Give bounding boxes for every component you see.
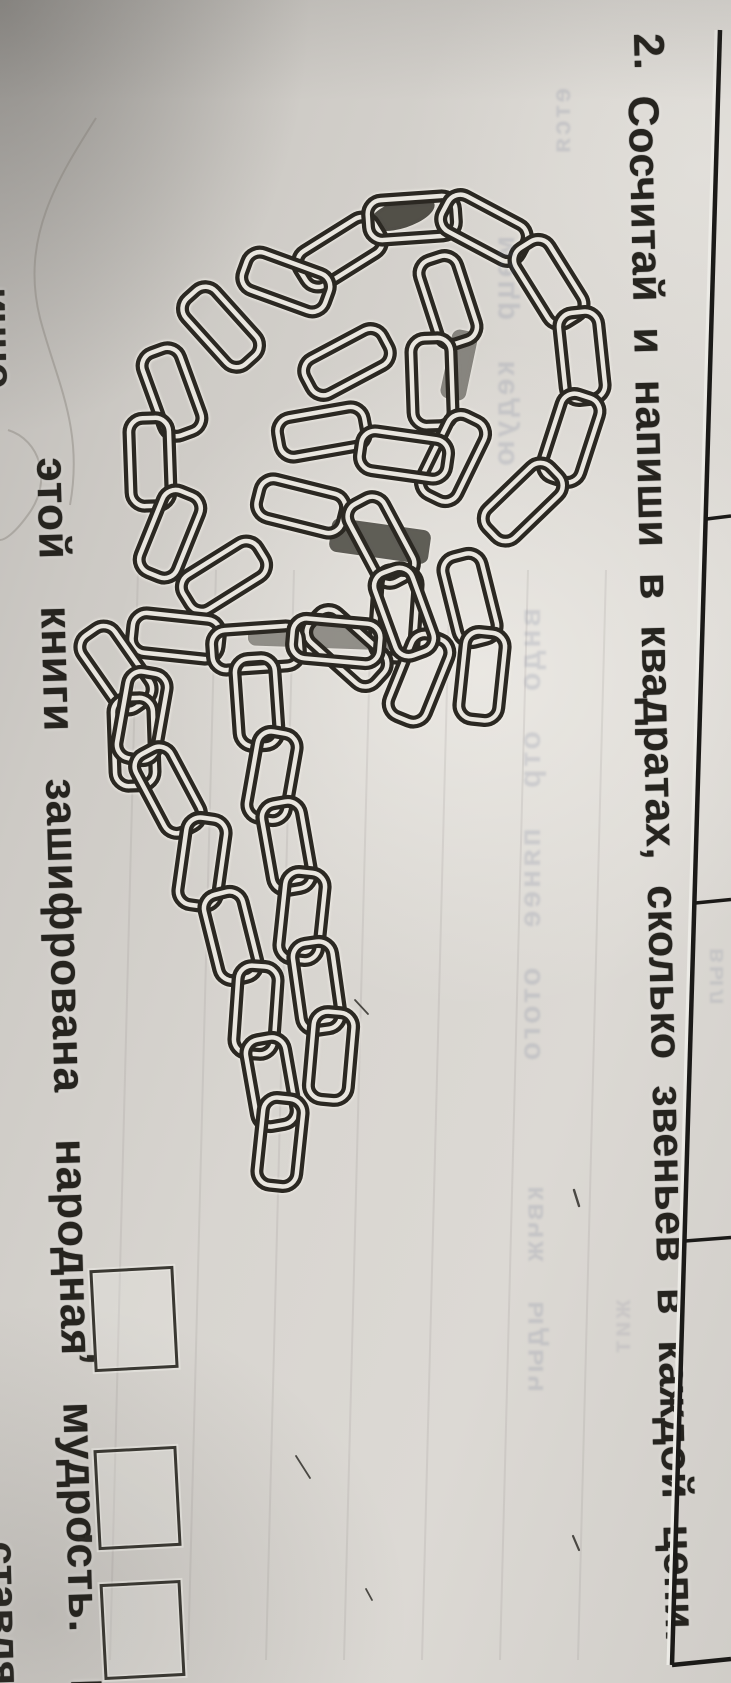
separator-comma: , (74, 1532, 128, 1545)
photographed-workbook-page: ется мэцр кедую вндо отр пянее отого квч… (0, 0, 731, 1683)
table-edge-line (0, 0, 731, 1683)
answer-box-3[interactable] (100, 1580, 186, 1680)
separator-comma: , (76, 1352, 130, 1365)
